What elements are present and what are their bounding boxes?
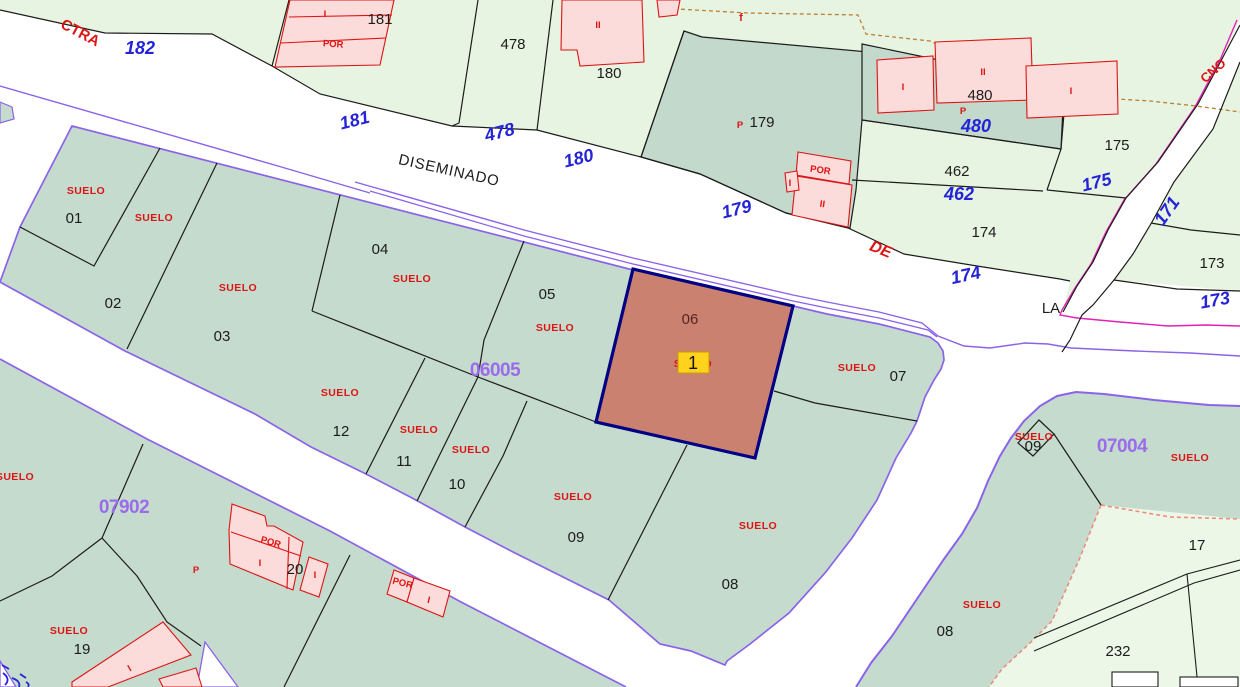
svg-text:I: I	[789, 178, 792, 189]
svg-text:480: 480	[960, 116, 991, 136]
svg-text:I: I	[259, 558, 262, 569]
svg-text:SUELO: SUELO	[1015, 431, 1053, 443]
svg-text:462: 462	[943, 184, 974, 204]
svg-text:04: 04	[372, 241, 389, 258]
svg-text:462: 462	[944, 163, 969, 180]
svg-text:SUELO: SUELO	[536, 322, 574, 334]
svg-text:P: P	[960, 106, 967, 117]
svg-text:SUELO: SUELO	[739, 520, 777, 532]
svg-text:01: 01	[66, 210, 83, 227]
svg-text:P: P	[193, 565, 200, 576]
svg-text:08: 08	[722, 576, 739, 593]
svg-text:SUELO: SUELO	[321, 387, 359, 399]
svg-text:SUELO: SUELO	[50, 625, 88, 637]
svg-text:182: 182	[125, 38, 155, 58]
svg-text:175: 175	[1104, 137, 1129, 154]
svg-text:SUELO: SUELO	[838, 362, 876, 374]
svg-text:19: 19	[74, 641, 91, 658]
svg-text:I: I	[1070, 86, 1073, 97]
svg-text:II: II	[980, 67, 985, 78]
svg-text:173: 173	[1199, 255, 1224, 272]
svg-text:10: 10	[449, 476, 466, 493]
svg-text:LA: LA	[1042, 300, 1060, 317]
svg-text:06005: 06005	[470, 360, 521, 381]
svg-text:174: 174	[971, 224, 996, 241]
svg-text:II: II	[595, 20, 600, 31]
svg-text:SUELO: SUELO	[219, 282, 257, 294]
svg-text:20: 20	[287, 561, 304, 578]
svg-text:480: 480	[967, 87, 992, 104]
svg-text:SUELO: SUELO	[0, 471, 34, 483]
svg-text:I: I	[314, 570, 317, 581]
svg-text:03: 03	[214, 328, 231, 345]
svg-text:02: 02	[105, 295, 122, 312]
svg-text:SUELO: SUELO	[1171, 452, 1209, 464]
svg-text:180: 180	[596, 65, 621, 82]
svg-text:I: I	[324, 9, 327, 20]
svg-text:06: 06	[682, 311, 699, 328]
svg-text:181: 181	[367, 11, 392, 28]
svg-text:11: 11	[396, 453, 412, 470]
svg-text:07902: 07902	[99, 497, 149, 518]
svg-text:08: 08	[937, 623, 954, 640]
svg-text:SUELO: SUELO	[135, 212, 173, 224]
svg-text:232: 232	[1105, 643, 1130, 660]
svg-text:1: 1	[688, 353, 698, 373]
svg-text:SUELO: SUELO	[452, 444, 490, 456]
svg-text:P: P	[737, 120, 744, 131]
svg-text:12: 12	[333, 423, 350, 440]
svg-text:SUELO: SUELO	[393, 273, 431, 285]
svg-text:I: I	[902, 82, 905, 93]
svg-text:478: 478	[500, 36, 525, 53]
svg-text:SUELO: SUELO	[67, 185, 105, 197]
svg-text:SUELO: SUELO	[400, 424, 438, 436]
svg-text:f: f	[739, 12, 743, 24]
svg-text:07004: 07004	[1097, 436, 1148, 457]
svg-text:07: 07	[890, 368, 907, 385]
svg-text:POR: POR	[323, 38, 344, 50]
svg-text:179: 179	[749, 114, 774, 131]
svg-text:SUELO: SUELO	[963, 599, 1001, 611]
svg-text:09: 09	[568, 529, 585, 546]
svg-text:05: 05	[539, 286, 556, 303]
svg-text:SUELO: SUELO	[554, 491, 592, 503]
svg-text:17: 17	[1189, 537, 1206, 554]
